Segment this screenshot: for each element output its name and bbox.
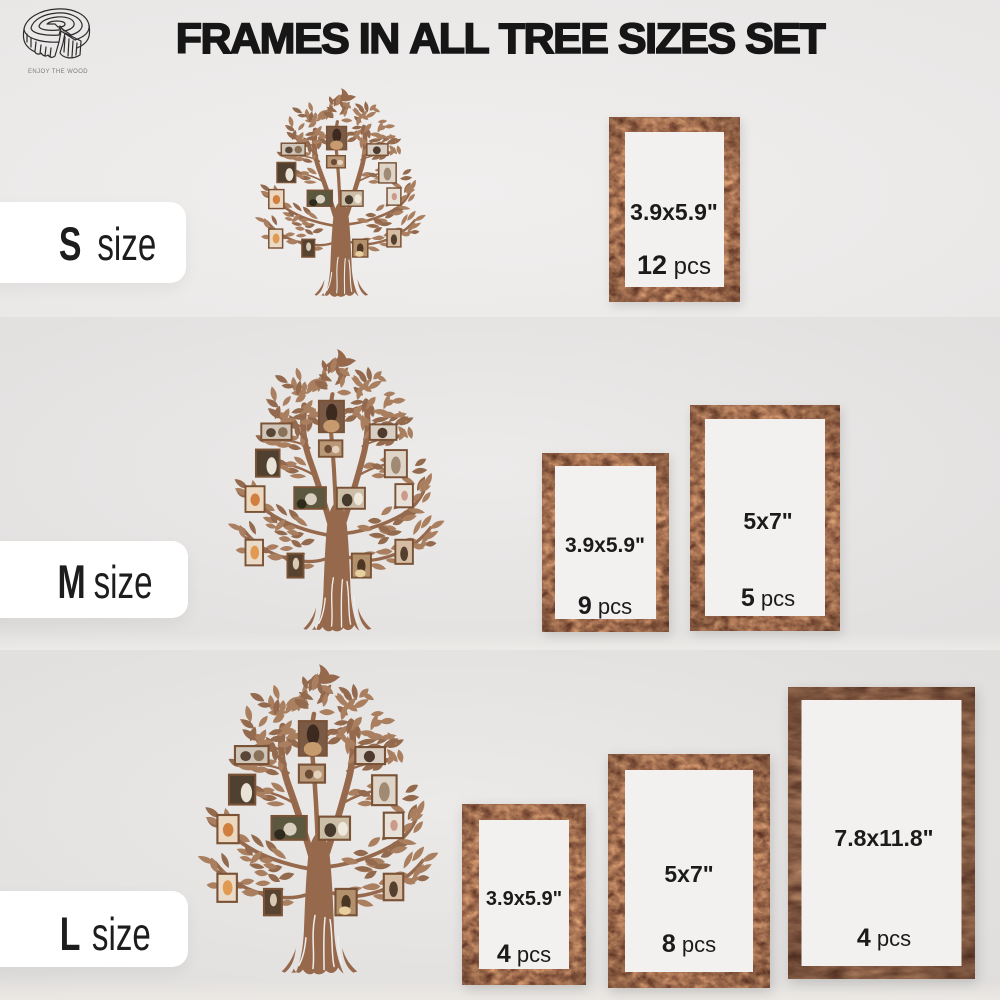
svg-text:ENJOY THE WOOD: ENJOY THE WOOD: [28, 69, 88, 75]
